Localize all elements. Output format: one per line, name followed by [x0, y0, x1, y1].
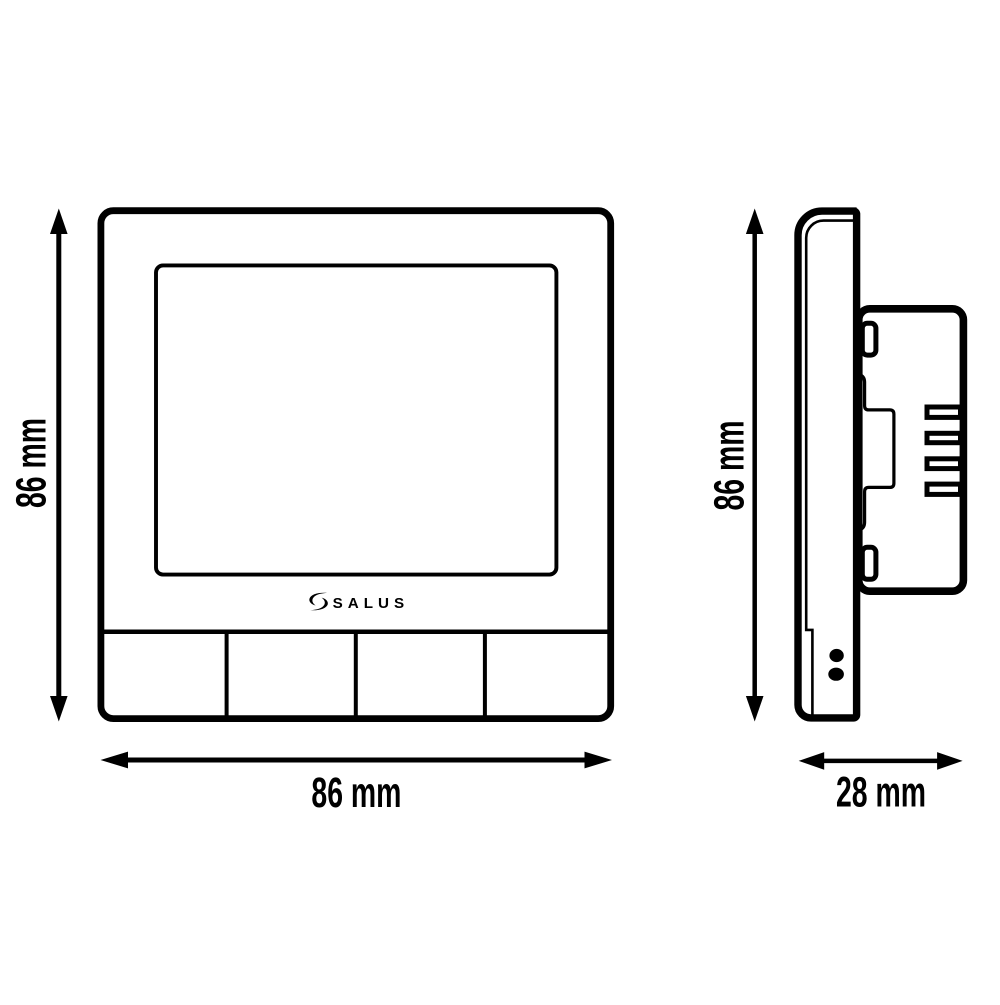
svg-text:86 mm: 86 mm [705, 420, 753, 510]
svg-text:SALUS: SALUS [333, 595, 409, 612]
svg-text:86 mm: 86 mm [7, 418, 55, 508]
svg-text:28 mm: 28 mm [836, 768, 926, 816]
svg-text:86 mm: 86 mm [311, 768, 401, 816]
